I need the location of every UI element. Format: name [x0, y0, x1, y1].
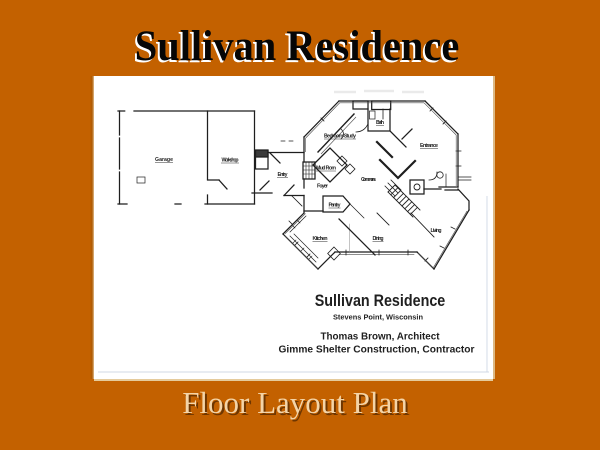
- svg-text:Workshop: Workshop: [222, 158, 239, 164]
- svg-text:Entry: Entry: [278, 172, 288, 178]
- svg-text:Thomas Brown, Architect: Thomas Brown, Architect: [321, 332, 441, 343]
- svg-text:Stevens Point, Wisconsin: Stevens Point, Wisconsin: [333, 315, 423, 322]
- svg-text:Foyer: Foyer: [317, 184, 328, 190]
- svg-text:Bath: Bath: [376, 120, 384, 126]
- svg-text:Sullivan Residence: Sullivan Residence: [315, 292, 446, 310]
- svg-text:Gimme Shelter Construction, Co: Gimme Shelter Construction, Contractor: [279, 345, 475, 356]
- svg-text:Bedroom-Study: Bedroom-Study: [324, 134, 356, 140]
- svg-text:Garage: Garage: [155, 157, 173, 163]
- svg-text:Mud Rom: Mud Rom: [316, 166, 336, 172]
- svg-text:Commons: Commons: [361, 177, 376, 183]
- svg-text:Dining: Dining: [373, 236, 384, 242]
- svg-text:Entrance: Entrance: [420, 143, 438, 149]
- svg-text:Pantry: Pantry: [329, 203, 341, 209]
- svg-text:Living: Living: [431, 228, 442, 234]
- svg-text:Kitchen: Kitchen: [313, 236, 328, 242]
